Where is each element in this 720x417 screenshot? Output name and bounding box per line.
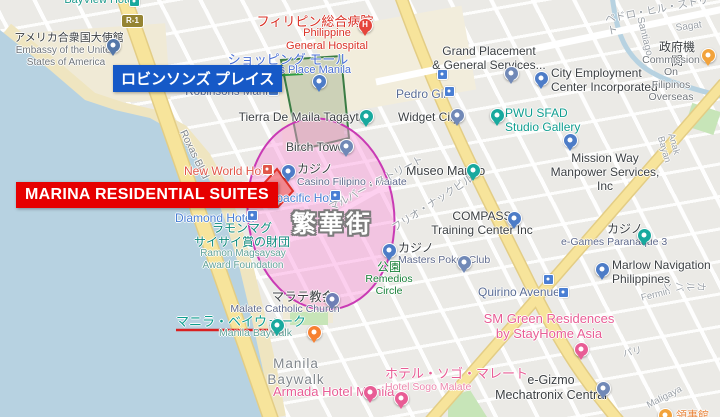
egames-marker[interactable] (637, 228, 652, 243)
armada-hotel-marker[interactable] (363, 385, 378, 400)
masters-poker-en-label[interactable]: Masters Poker Club (398, 254, 490, 266)
bayview-hotel-label[interactable]: BayView Hotel (64, 0, 135, 7)
pedro-gil-station-marker[interactable] (437, 69, 448, 80)
us-embassy-marker-tail (109, 50, 117, 56)
restaurant-marker-tail (310, 337, 318, 343)
egames-marker-tail (640, 240, 648, 246)
diamond-inline-marker[interactable] (247, 210, 258, 221)
robinsons-shopping-marker-tail (315, 86, 323, 92)
marlow-marker[interactable] (595, 262, 610, 277)
hotel-sogo-marker-tail (397, 403, 405, 409)
quirino-station-marker[interactable] (543, 274, 554, 285)
birch-tower-marker-tail (342, 151, 350, 157)
pwu-sfad-label[interactable]: PWU SFAD Studio Gallery (505, 106, 580, 134)
casino-filipino-marker-tail (284, 176, 292, 182)
widget-city-marker-tail (453, 120, 461, 126)
museo-marino-marker-tail (469, 175, 477, 181)
armada-hotel-marker-tail (366, 397, 374, 403)
robinsons-place-callout: ロビンソンズ プレイス (113, 65, 282, 92)
masters-poker-marker-tail (385, 255, 393, 261)
us-embassy-en-label[interactable]: Embassy of the United States of America (16, 45, 117, 69)
sm-green-marker-tail (577, 354, 585, 360)
commission-filipinos-label[interactable]: Commission On Filipinos Overseas (642, 54, 700, 104)
sm-green-residences-label[interactable]: SM Green Residences by StayHome Asia (484, 311, 615, 342)
ramon-magsaysay-en-label[interactable]: Ramon Magsaysay Award Foundation (200, 248, 286, 272)
compass-marker[interactable] (507, 211, 522, 226)
city-employment-marker[interactable] (534, 71, 549, 86)
phil-general-hospital-en-label[interactable]: Philippine General Hospital (286, 27, 368, 53)
karuban-street-label: カルバン (661, 282, 706, 296)
masters-poker-2-marker[interactable] (457, 255, 472, 270)
grand-placement-marker[interactable] (504, 66, 519, 81)
hotel-sogo-marker[interactable] (394, 391, 409, 406)
pedro-gil-inline-marker[interactable] (444, 86, 455, 97)
map-canvas[interactable]: R-1 繁華街 ロビンソンズ プレイス MARINA RESIDENTIAL S… (0, 0, 720, 417)
compass-marker-tail (510, 223, 518, 229)
route-r1-badge: R-1 (121, 14, 144, 28)
ramon-magsaysay-jp-label[interactable]: ラモンマグ サイサイ賞の財団 (194, 221, 290, 249)
new-world-hotel-label[interactable]: New World Hotel (184, 164, 274, 178)
marlow-marker-tail (598, 274, 606, 280)
commission-marker[interactable] (701, 48, 716, 63)
baywalk-attraction-marker-tail (273, 330, 281, 336)
grand-placement-marker-tail (507, 78, 515, 84)
sm-green-marker[interactable] (574, 342, 589, 357)
new-world-inline-marker[interactable] (262, 164, 273, 175)
city-employment-marker-tail (537, 83, 545, 89)
masters-poker-marker[interactable] (382, 243, 397, 258)
mission-way-marker-tail (566, 145, 574, 151)
egizmo-marker-tail (599, 393, 607, 399)
widget-city-marker[interactable] (450, 108, 465, 123)
masters-poker-2-marker-tail (460, 267, 468, 273)
mission-way-label[interactable]: Mission Way Manpower Services, Inc (548, 151, 663, 193)
malate-church-marker[interactable] (325, 292, 340, 307)
pwu-sfad-marker-tail (493, 120, 501, 126)
panpacific-inline-marker[interactable] (330, 190, 341, 201)
consulate-marker[interactable] (658, 408, 673, 417)
casino-filipino-jp-label[interactable]: カジノ (297, 162, 333, 176)
hotel-sogo-jp-label[interactable]: ホテル・ソゴ・マレート (385, 366, 528, 381)
quirino-inline-marker[interactable] (558, 287, 569, 298)
tierra-de-maila-label[interactable]: Tierra De Maila Tagaytay (239, 110, 372, 124)
hospital-marker-tail (361, 30, 369, 36)
malate-church-marker-tail (328, 304, 336, 310)
remedios-circle-label[interactable]: Remedios Circle (365, 273, 412, 298)
restaurant-marker[interactable] (307, 325, 322, 340)
hospital-marker[interactable]: H (358, 18, 373, 33)
pedro-gil-station-label[interactable]: Pedro Gil (396, 87, 446, 101)
robinsons-shopping-marker[interactable] (312, 74, 327, 89)
quirino-avenue-label[interactable]: Quirino Avenue (478, 285, 560, 299)
tierra-marker-tail (362, 121, 370, 127)
bayview-inline-marker[interactable] (129, 0, 140, 7)
district-label: 繁華街 (292, 204, 373, 239)
casino-filipino-marker[interactable] (281, 164, 296, 179)
museo-marino-marker[interactable] (466, 163, 481, 178)
pwu-sfad-marker[interactable] (490, 108, 505, 123)
tierra-marker[interactable] (359, 109, 374, 124)
baywalk-attraction-marker[interactable] (270, 318, 285, 333)
grand-placement-label[interactable]: Grand Placement & General Services... (432, 44, 545, 72)
mission-way-marker[interactable] (563, 133, 578, 148)
egizmo-marker[interactable] (596, 381, 611, 396)
birch-tower-marker[interactable] (339, 139, 354, 154)
us-embassy-marker[interactable] (106, 38, 121, 53)
consulate-partial-label[interactable]: 領事館 (676, 410, 709, 417)
commission-marker-tail (704, 60, 712, 66)
marina-callout: MARINA RESIDENTIAL SUITES (16, 182, 278, 208)
